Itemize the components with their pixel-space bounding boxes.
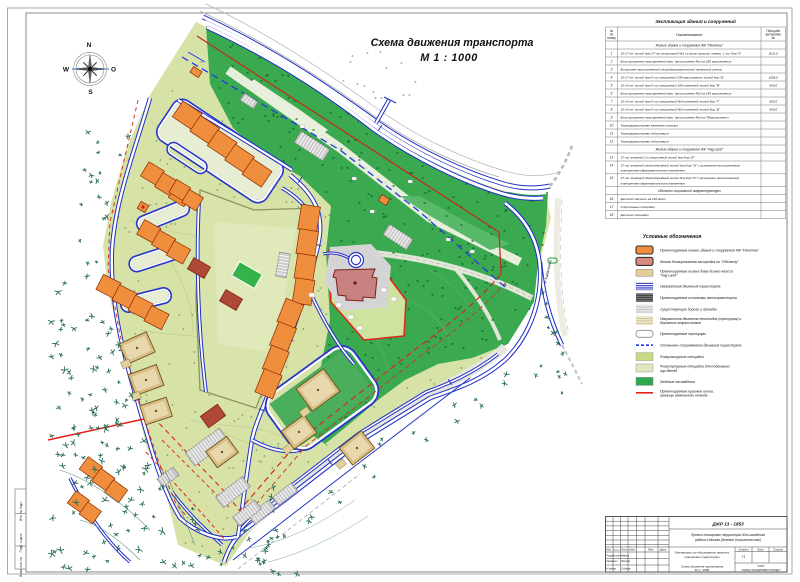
- svg-text:ДЖР 13 - 1853: ДЖР 13 - 1853: [711, 522, 744, 527]
- svg-text:Спортивные площадки: Спортивные площадки: [621, 205, 656, 209]
- svg-text:планировки территории: планировки территории: [684, 555, 720, 559]
- svg-text:18: 18: [610, 213, 614, 217]
- svg-text:Кол.уч: Кол.уч: [613, 550, 620, 552]
- svg-text:14: 14: [610, 163, 614, 167]
- svg-text:Проектируемые тротуары: Проектируемые тротуары: [660, 332, 707, 336]
- svg-text:1606,0: 1606,0: [769, 75, 779, 79]
- svg-text:Физкультурные площадки: Физкультурные площадки: [660, 355, 704, 359]
- svg-text:Зелёные насаждения: Зелёные насаждения: [660, 380, 695, 384]
- svg-text:Блок встроенно-пристроенной ав: Блок встроенно-пристроенной авт. автосто…: [621, 59, 732, 63]
- svg-text:Экспликация зданий и сооруж: Экспликация зданий и сооружений: [655, 18, 736, 24]
- svg-text:"Vag Land": "Vag Land": [660, 274, 678, 278]
- svg-text:Направления движения транспорт: Направления движения транспорта: [660, 285, 721, 289]
- svg-text:17-ти этажный одноподъездный ж: 17-ти этажный одноподъездный жилой дом К…: [621, 163, 741, 167]
- svg-text:10-14 эт. жилой дом 5-ти секци: 10-14 эт. жилой дом 5-ти секционный №4 п…: [621, 99, 721, 103]
- svg-text:Проектируемые остановки автотр: Проектируемые остановки автотранспорта: [660, 296, 737, 300]
- svg-text:4: 4: [611, 75, 613, 79]
- svg-text:Наименование: Наименование: [676, 33, 702, 37]
- svg-text:Подп.: Подп.: [648, 549, 655, 552]
- svg-text:игр детей: игр детей: [660, 369, 677, 373]
- svg-text:Проектируемые жилые здания и с: Проектируемые жилые здания и сооружения …: [660, 248, 760, 252]
- svg-text:Детские площадки: Детские площадки: [620, 213, 649, 217]
- svg-text:Стадия: Стадия: [739, 548, 749, 552]
- svg-text:10-17 эт. жилой дом 5-ти секци: 10-17 эт. жилой дом 5-ти секционный 250 …: [621, 75, 725, 79]
- svg-text:10-17 эт. жилой дом 17-ти секц: 10-17 эт. жилой дом 17-ти секционный №1 …: [621, 51, 743, 55]
- svg-text:дорожные асфальтовые: дорожные асфальтовые: [660, 321, 701, 325]
- svg-text:Встроенно-пристроенный общеобр: Встроенно-пристроенный общеобразовательн…: [621, 67, 722, 71]
- svg-text:Жилые здания и сооружения ЖК ": Жилые здания и сооружения ЖК "Vag Land": [655, 147, 724, 151]
- svg-text:808,0: 808,0: [769, 107, 777, 111]
- svg-text:16: 16: [610, 197, 614, 201]
- svg-text:Трансформаторная наземная стан: Трансформаторная наземная станция: [621, 123, 679, 127]
- svg-text:Петров: Петров: [621, 560, 631, 563]
- svg-text:Схема движения транспорта: Схема движения транспорта: [371, 37, 534, 49]
- svg-text:Лист: Лист: [756, 548, 765, 552]
- svg-text:плану: плану: [607, 36, 616, 40]
- svg-text:9: 9: [611, 115, 613, 119]
- svg-text:Детский сад-ясли на 140 мест: Детский сад-ясли на 140 мест: [620, 197, 667, 201]
- svg-text:Условные обозначения: Условные обозначения: [643, 233, 702, 240]
- svg-text:Блок встроенно-пристроенной ав: Блок встроенно-пристроенной авт. автосто…: [621, 115, 730, 119]
- svg-text:Трансформаторная подстанция: Трансформаторная подстанция: [621, 131, 669, 135]
- svg-text:N: N: [87, 42, 92, 49]
- svg-text:11: 11: [610, 131, 614, 135]
- svg-text:3: 3: [611, 67, 613, 71]
- svg-text:Остановки сохраняемого движени: Остановки сохраняемого движения транспор…: [660, 344, 741, 348]
- svg-text:7: 7: [611, 99, 613, 103]
- svg-text:852,0: 852,0: [769, 99, 777, 103]
- svg-text:808,0: 808,0: [769, 83, 777, 87]
- svg-text:Лист: Лист: [620, 549, 627, 552]
- svg-text:Объекты социальной инфраструкт: Объекты социальной инфраструктуры: [658, 189, 721, 193]
- svg-text:М 1 : 1000: М 1 : 1000: [420, 52, 478, 64]
- svg-text:Проект планировки территории Ю: Проект планировки территории Юго-западно…: [691, 533, 765, 537]
- svg-text:Блок встроенно-пристроенной ав: Блок встроенно-пристроенной авт. автосто…: [621, 91, 732, 95]
- svg-text:13: 13: [610, 155, 614, 159]
- svg-text:Трансформаторная подстанция: Трансформаторная подстанция: [621, 139, 669, 143]
- svg-text:17-ти этажный 2-х секционный ж: 17-ти этажный 2-х секционный жилой дом К…: [621, 155, 696, 159]
- svg-text:Существующие дороги и проезды: Существующие дороги и проезды: [660, 307, 717, 311]
- svg-text:17-ти этажный одноподъездный ж: 17-ти этажный одноподъездный жилой дом К…: [621, 176, 741, 180]
- svg-text:15: 15: [610, 176, 614, 180]
- svg-text:10-14 эт. жилой дом 5-ти секци: 10-14 эт. жилой дом 5-ти секционный №5 п…: [621, 107, 722, 111]
- svg-text:6: 6: [611, 91, 613, 95]
- svg-text:1: 1: [611, 51, 613, 55]
- svg-text:Разработал: Разработал: [607, 555, 622, 558]
- svg-text:"НИИЦ ПЛАНИРОВКИ ГОРОДА": "НИИЦ ПЛАНИРОВКИ ГОРОДА": [741, 568, 781, 572]
- svg-text:10: 10: [610, 123, 614, 127]
- svg-text:№док.: №док.: [628, 549, 635, 552]
- svg-text:Н.контр.: Н.контр.: [607, 568, 617, 571]
- svg-text:17: 17: [610, 205, 614, 209]
- svg-text:Инв. № подл.: Инв. № подл.: [19, 501, 23, 521]
- svg-text:Жилые здания и сооружения ЖК ": Жилые здания и сооружения ЖК "Пехотка": [655, 43, 724, 47]
- svg-text:Взам. инв. №: Взам. инв. №: [19, 557, 23, 577]
- svg-text:8: 8: [611, 107, 613, 111]
- svg-text:ООО: ООО: [757, 564, 765, 568]
- svg-text:Дата: Дата: [659, 549, 667, 552]
- svg-text:12: 12: [610, 139, 614, 143]
- svg-text:помещением образовательного на: помещением образовательного назначения: [621, 181, 686, 185]
- svg-text:O: O: [111, 67, 116, 74]
- svg-text:Жилая блокированная застройка: Жилая блокированная застройка по "Объект…: [659, 260, 739, 264]
- svg-text:2: 2: [610, 59, 613, 63]
- svg-text:Проверил: Проверил: [607, 560, 619, 563]
- svg-text:W: W: [63, 67, 70, 74]
- svg-text:Изм.: Изм.: [606, 549, 611, 552]
- svg-text:М 1 : 1000: М 1 : 1000: [695, 568, 710, 572]
- svg-text:района г.Москва (долевое строи: района г.Москва (долевое строительство): [694, 538, 761, 542]
- svg-text:Сидоров: Сидоров: [621, 568, 631, 571]
- svg-text:Подп. и дата: Подп. и дата: [19, 533, 23, 552]
- svg-text:S: S: [88, 89, 93, 96]
- svg-text:2611,0: 2611,0: [768, 51, 779, 55]
- svg-text:помещением образовательного на: помещением образовательного назначения: [621, 169, 686, 173]
- svg-text:Листов: Листов: [772, 548, 783, 552]
- svg-text:10-14 эт. жилой дом 5-ти секци: 10-14 эт. жилой дом 5-ти секционный 185 …: [621, 83, 722, 87]
- svg-text:границы земельного отвода: границы земельного отвода: [660, 394, 708, 398]
- svg-text:Материалы по обоснованию проек: Материалы по обоснованию проекта: [675, 551, 729, 555]
- svg-text:Иванов: Иванов: [621, 555, 630, 558]
- svg-text:5: 5: [611, 83, 613, 87]
